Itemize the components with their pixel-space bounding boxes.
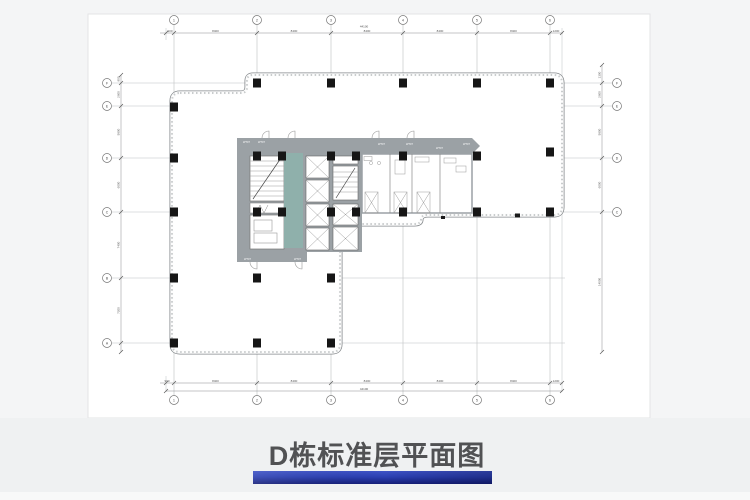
svg-text:F: F <box>106 81 108 85</box>
svg-text:WT07: WT07 <box>258 140 265 144</box>
svg-text:8400: 8400 <box>212 29 219 33</box>
svg-text:4: 4 <box>402 18 404 22</box>
washrooms <box>362 154 472 213</box>
svg-text:8400: 8400 <box>437 29 444 33</box>
floor-plan-canvas: WT07 WT07 WT07 WT07 WT07 WT07 WT07 WT07 <box>0 0 750 500</box>
svg-text:WT07: WT07 <box>243 140 250 144</box>
core-highlight-zone <box>284 153 303 248</box>
svg-text:44100: 44100 <box>360 25 369 29</box>
svg-text:1200: 1200 <box>553 379 560 383</box>
svg-text:8400: 8400 <box>291 379 298 383</box>
svg-text:1200: 1200 <box>553 29 560 33</box>
svg-text:2: 2 <box>256 18 258 22</box>
svg-text:1: 1 <box>173 398 175 402</box>
svg-text:5: 5 <box>476 18 478 22</box>
stairwell-1 <box>250 156 284 201</box>
svg-text:6: 6 <box>549 398 551 402</box>
svg-text:2: 2 <box>256 398 258 402</box>
bottom-strip <box>0 492 750 500</box>
svg-text:8400: 8400 <box>364 29 371 33</box>
svg-text:8400: 8400 <box>437 379 444 383</box>
svg-text:WT07: WT07 <box>244 257 251 261</box>
svg-text:4: 4 <box>402 398 404 402</box>
svg-text:8400: 8400 <box>212 379 219 383</box>
svg-text:5: 5 <box>476 398 478 402</box>
svg-text:14000: 14000 <box>598 277 602 286</box>
svg-text:900: 900 <box>167 29 172 33</box>
svg-text:900: 900 <box>117 76 121 81</box>
svg-text:44100: 44100 <box>360 387 369 391</box>
svg-text:5800: 5800 <box>117 128 121 135</box>
svg-text:WT07: WT07 <box>406 142 413 146</box>
svg-text:8400: 8400 <box>291 29 298 33</box>
svg-text:WT07: WT07 <box>294 257 301 261</box>
svg-text:7200: 7200 <box>117 307 121 314</box>
svg-text:WT07: WT07 <box>463 142 470 146</box>
svg-text:6: 6 <box>549 18 551 22</box>
svg-text:3: 3 <box>330 398 332 402</box>
svg-text:2600: 2600 <box>117 91 121 98</box>
svg-text:1300: 1300 <box>598 71 602 78</box>
svg-text:WT07: WT07 <box>436 146 443 150</box>
core-lobby-room <box>250 215 284 249</box>
svg-text:3: 3 <box>330 18 332 22</box>
svg-text:8400: 8400 <box>510 379 517 383</box>
svg-text:6000: 6000 <box>598 181 602 188</box>
title-underline-bar-shade <box>253 471 492 484</box>
svg-text:1: 1 <box>173 18 175 22</box>
svg-text:5800: 5800 <box>598 128 602 135</box>
svg-text:7400: 7400 <box>117 241 121 248</box>
floor-plan-page: WT07 WT07 WT07 WT07 WT07 WT07 WT07 WT07 <box>0 0 750 500</box>
svg-text:8400: 8400 <box>510 29 517 33</box>
svg-text:8400: 8400 <box>364 379 371 383</box>
svg-text:6000: 6000 <box>117 181 121 188</box>
svg-text:F: F <box>616 81 618 85</box>
plan-title: D栋标准层平面图 <box>269 440 486 471</box>
svg-text:WT07: WT07 <box>378 142 385 146</box>
svg-text:2600: 2600 <box>598 91 602 98</box>
svg-text:900: 900 <box>164 379 169 383</box>
